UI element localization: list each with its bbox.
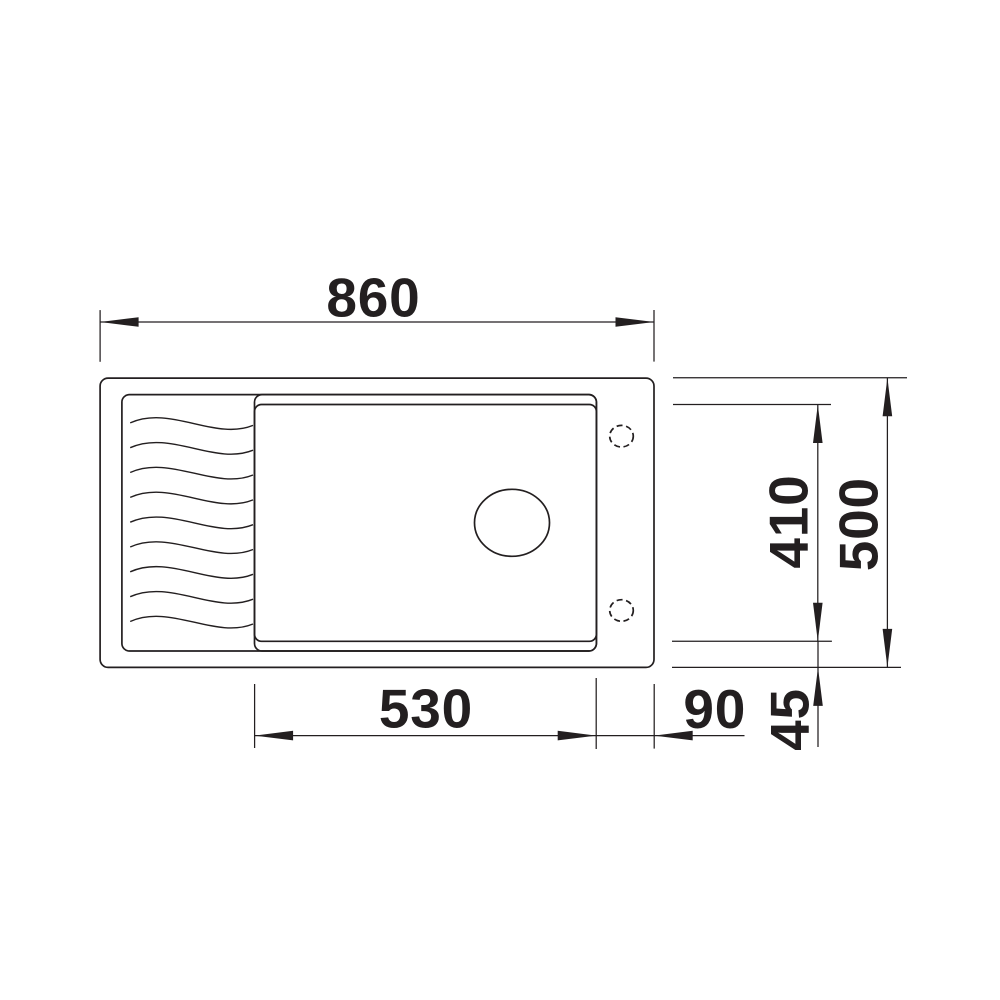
svg-text:500: 500: [827, 477, 889, 571]
svg-text:410: 410: [758, 475, 820, 569]
svg-text:860: 860: [326, 267, 420, 329]
svg-text:45: 45: [759, 688, 821, 751]
svg-text:90: 90: [683, 678, 746, 740]
svg-text:530: 530: [379, 678, 473, 740]
